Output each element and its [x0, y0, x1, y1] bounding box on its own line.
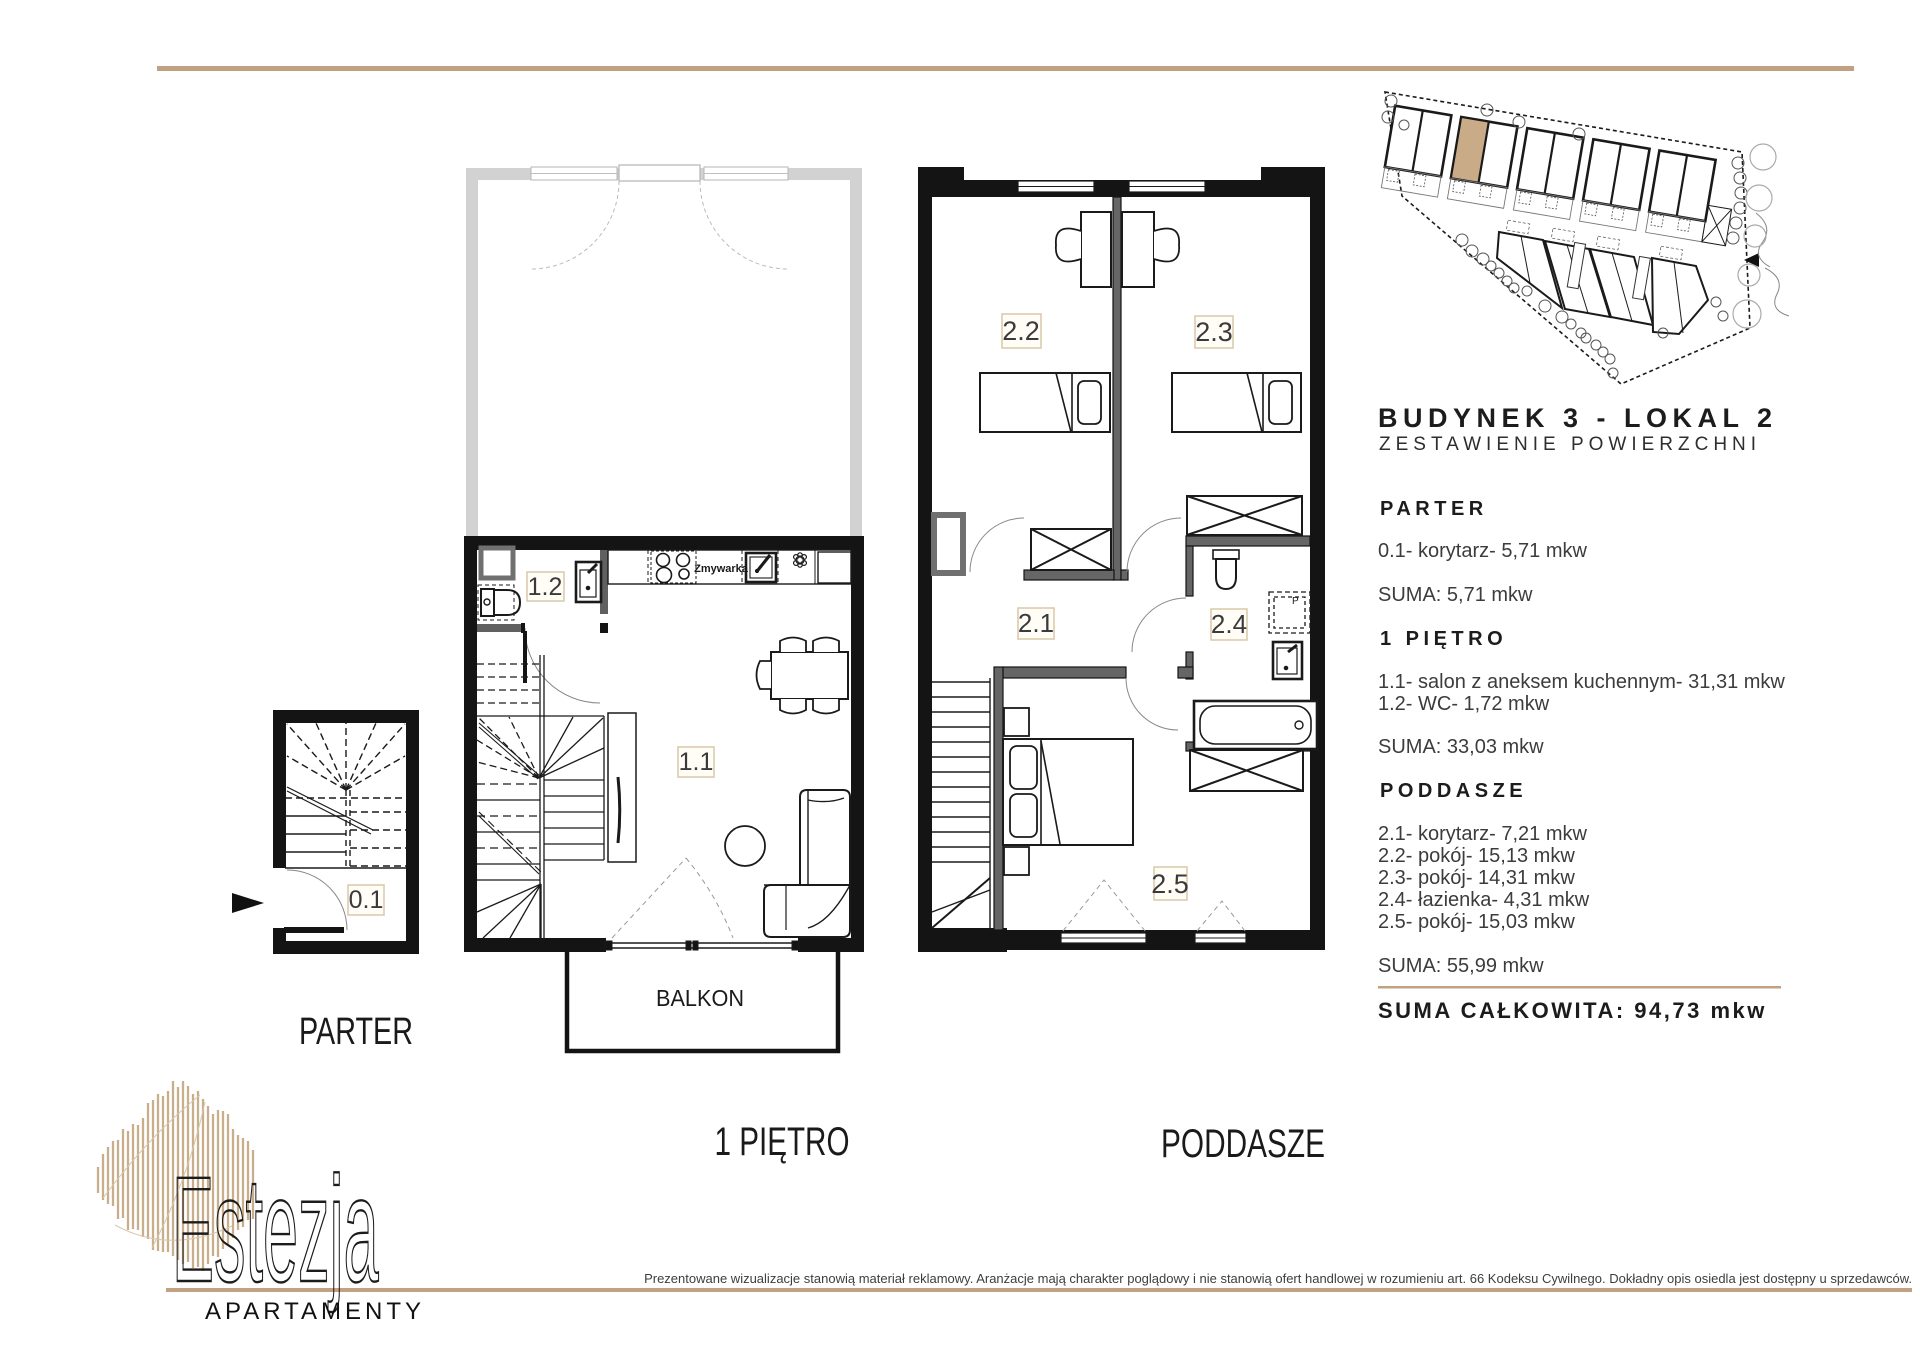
svg-text:ZESTAWIENIE POWIERZCHNI: ZESTAWIENIE POWIERZCHNI: [1379, 434, 1761, 455]
svg-text:SUMA: 5,71 mkw: SUMA: 5,71 mkw: [1378, 584, 1533, 606]
svg-text:1.1: 1.1: [679, 748, 714, 776]
svg-text:1.1- salon z aneksem kuchennym: 1.1- salon z aneksem kuchennym- 31,31 mk…: [1378, 671, 1785, 693]
svg-text:1 PIĘTRO: 1 PIĘTRO: [1380, 628, 1507, 650]
svg-text:1 PIĘTRO: 1 PIĘTRO: [715, 1120, 850, 1164]
svg-text:SUMA: 55,99 mkw: SUMA: 55,99 mkw: [1378, 955, 1544, 977]
svg-text:1.2- WC- 1,72 mkw: 1.2- WC- 1,72 mkw: [1378, 693, 1550, 715]
svg-text:PODDASZE: PODDASZE: [1380, 780, 1527, 802]
svg-text:2.1: 2.1: [1018, 608, 1054, 638]
svg-text:0.1- korytarz- 5,71 mkw: 0.1- korytarz- 5,71 mkw: [1378, 540, 1588, 562]
svg-text:SUMA: 33,03 mkw: SUMA: 33,03 mkw: [1378, 736, 1544, 758]
svg-text:PODDASZE: PODDASZE: [1161, 1122, 1325, 1166]
svg-text:P: P: [1292, 596, 1299, 607]
svg-text:2.2: 2.2: [1002, 316, 1040, 346]
svg-text:Prezentowane wizualizacje stan: Prezentowane wizualizacje stanowią mater…: [644, 1271, 1912, 1286]
svg-text:Zmywarka: Zmywarka: [694, 563, 749, 575]
svg-text:0.1: 0.1: [349, 886, 384, 914]
svg-text:2.5: 2.5: [1151, 869, 1189, 899]
svg-text:PARTER: PARTER: [299, 1011, 413, 1053]
svg-text:PARTER: PARTER: [1380, 498, 1488, 520]
svg-text:Estezja: Estezja: [172, 1147, 379, 1314]
svg-text:2.3: 2.3: [1195, 317, 1233, 347]
svg-text:1.2: 1.2: [528, 573, 563, 601]
svg-text:2.4: 2.4: [1211, 609, 1247, 639]
svg-text:SUMA CAŁKOWITA: 94,73 mkw: SUMA CAŁKOWITA: 94,73 mkw: [1378, 998, 1767, 1023]
svg-text:2.4- łazienka- 4,31 mkw: 2.4- łazienka- 4,31 mkw: [1378, 889, 1590, 911]
svg-text:APARTAMENTY: APARTAMENTY: [205, 1298, 425, 1325]
svg-text:2.2- pokój- 15,13 mkw: 2.2- pokój- 15,13 mkw: [1378, 845, 1575, 867]
svg-text:2.5- pokój- 15,03 mkw: 2.5- pokój- 15,03 mkw: [1378, 911, 1575, 933]
svg-text:2.1- korytarz- 7,21 mkw: 2.1- korytarz- 7,21 mkw: [1378, 823, 1588, 845]
svg-text:BUDYNEK 3 - LOKAL 2: BUDYNEK 3 - LOKAL 2: [1378, 403, 1778, 433]
svg-text:2.3- pokój- 14,31 mkw: 2.3- pokój- 14,31 mkw: [1378, 867, 1575, 889]
svg-text:BALKON: BALKON: [656, 985, 744, 1011]
